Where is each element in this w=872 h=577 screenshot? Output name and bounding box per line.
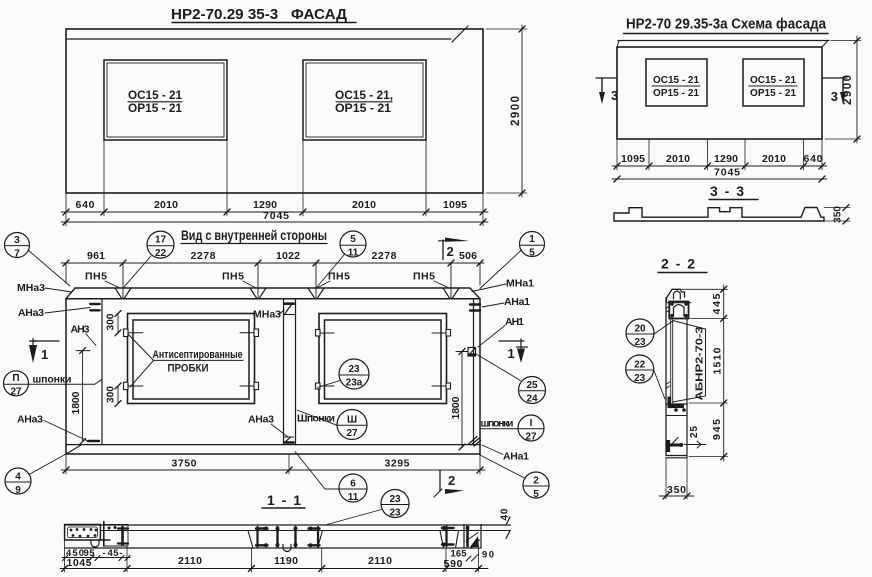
svg-text:3: 3: [14, 235, 20, 246]
svg-text:1: 1: [529, 234, 535, 245]
svg-text:НР2-70 29.35-3а Схема фасада: НР2-70 29.35-3а Схема фасада: [626, 17, 827, 33]
svg-text:350: 350: [667, 484, 686, 496]
svg-text:22: 22: [155, 248, 167, 259]
svg-text:ОС15 - 21,: ОС15 - 21,: [335, 88, 393, 102]
svg-text:17: 17: [155, 235, 167, 246]
svg-text:ОР15 - 21: ОР15 - 21: [653, 88, 699, 99]
svg-text:1022: 1022: [276, 250, 300, 262]
svg-text:27: 27: [10, 387, 22, 398]
svg-text:АБНР2-70-3: АБНР2-70-3: [694, 326, 706, 400]
svg-text:ОС15 - 21: ОС15 - 21: [128, 88, 182, 102]
svg-text:11: 11: [348, 248, 359, 259]
svg-text:3295: 3295: [385, 458, 410, 470]
svg-text:2110: 2110: [178, 555, 202, 567]
svg-text:27: 27: [346, 428, 358, 439]
svg-text:23: 23: [389, 508, 401, 519]
svg-text:22: 22: [634, 360, 646, 371]
svg-text:20: 20: [634, 324, 646, 335]
svg-text:ОР15 - 21: ОР15 - 21: [128, 101, 182, 115]
svg-text:350: 350: [833, 206, 844, 223]
svg-text:2278: 2278: [372, 250, 397, 262]
svg-text:7: 7: [14, 249, 20, 260]
svg-text:7045: 7045: [714, 167, 740, 179]
svg-text:3: 3: [611, 88, 618, 103]
svg-text:2010: 2010: [154, 199, 178, 211]
svg-text:23: 23: [634, 337, 646, 348]
svg-text:3750: 3750: [172, 458, 197, 470]
svg-text:1800: 1800: [450, 396, 462, 419]
svg-text:1: 1: [508, 346, 515, 361]
svg-text:2010: 2010: [666, 153, 690, 165]
svg-text:Вид с внутренней стороны: Вид с внутренней стороны: [181, 228, 327, 243]
svg-text:АН1: АН1: [505, 316, 524, 328]
svg-text:2900: 2900: [842, 75, 854, 105]
svg-text:ПРОБКИ: ПРОБКИ: [168, 363, 209, 375]
svg-text:300: 300: [106, 386, 117, 403]
svg-text:1800: 1800: [70, 391, 82, 414]
svg-text:АНа1: АНа1: [504, 296, 530, 308]
svg-text:5: 5: [350, 234, 356, 245]
svg-text:1: 1: [41, 347, 48, 362]
svg-text:2 - 2: 2 - 2: [661, 256, 695, 272]
svg-text:5: 5: [529, 248, 535, 259]
svg-text:ОР15 - 21: ОР15 - 21: [750, 88, 796, 99]
svg-text:Антисептированные: Антисептированные: [153, 349, 243, 361]
svg-text:Ш: Ш: [347, 415, 357, 426]
svg-text:24: 24: [526, 394, 538, 405]
svg-text:2010: 2010: [352, 199, 376, 211]
svg-text:25: 25: [526, 380, 538, 391]
svg-text:1095: 1095: [443, 199, 467, 211]
svg-text:27: 27: [525, 432, 537, 443]
svg-text:2: 2: [533, 476, 539, 487]
svg-text:шпонки: шпонки: [33, 374, 72, 386]
svg-text:I: I: [530, 418, 533, 429]
svg-text:23а: 23а: [346, 378, 363, 389]
svg-text:АН3: АН3: [71, 324, 90, 336]
svg-text:-: -: [119, 548, 122, 559]
svg-text:9: 9: [15, 485, 21, 496]
svg-text:ОР15 - 21: ОР15 - 21: [335, 101, 391, 115]
svg-text:445: 445: [711, 293, 723, 314]
svg-text:40: 40: [500, 508, 511, 520]
svg-text:961: 961: [87, 250, 105, 262]
svg-text:1045: 1045: [67, 557, 92, 569]
svg-text:АНа3: АНа3: [248, 414, 274, 426]
svg-text:945: 945: [711, 419, 723, 440]
svg-text:НР2-70.29 35-3 ФАСАД: НР2-70.29 35-3 ФАСАД: [171, 7, 348, 23]
svg-text:1290: 1290: [714, 153, 738, 165]
svg-text:шпонки: шпонки: [481, 418, 514, 430]
svg-text:ПН5: ПН5: [413, 271, 435, 283]
svg-text:2278: 2278: [191, 250, 216, 262]
svg-text:640: 640: [804, 153, 823, 165]
svg-text:11: 11: [348, 492, 359, 503]
svg-text:-: -: [102, 548, 105, 559]
svg-text:ОС15 - 21: ОС15 - 21: [653, 75, 699, 86]
svg-text:90: 90: [482, 550, 494, 561]
svg-text:МНа3: МНа3: [253, 309, 281, 321]
svg-text:506: 506: [459, 250, 477, 262]
svg-text:ПН5: ПН5: [222, 271, 244, 283]
svg-text:ОС15 - 21: ОС15 - 21: [750, 75, 796, 86]
svg-text:АНа3: АНа3: [18, 307, 44, 319]
svg-text:1095: 1095: [621, 153, 645, 165]
svg-text:АНа3: АНа3: [17, 414, 43, 426]
svg-text:ПН5: ПН5: [85, 271, 107, 283]
svg-text:П: П: [12, 373, 19, 384]
svg-text:4: 4: [15, 472, 21, 483]
svg-text:2900: 2900: [510, 96, 522, 126]
svg-text:25: 25: [689, 426, 700, 438]
svg-text:6: 6: [350, 479, 356, 490]
svg-text:640: 640: [76, 199, 95, 211]
svg-text:ПН5: ПН5: [328, 271, 350, 283]
svg-text:23: 23: [389, 494, 401, 505]
svg-text:2: 2: [448, 473, 455, 488]
svg-text:7045: 7045: [263, 210, 289, 222]
svg-text:1 - 1: 1 - 1: [267, 492, 301, 508]
svg-text:2: 2: [447, 244, 454, 259]
svg-text:1510: 1510: [712, 347, 724, 374]
svg-text:590: 590: [444, 558, 463, 570]
svg-text:165: 165: [451, 549, 468, 560]
svg-text:МНа1: МНа1: [506, 278, 534, 290]
svg-text:5: 5: [533, 489, 539, 500]
svg-text:3: 3: [831, 89, 838, 104]
svg-text:2110: 2110: [368, 555, 392, 567]
svg-text:1190: 1190: [274, 555, 298, 567]
svg-text:2010: 2010: [762, 153, 786, 165]
svg-text:23: 23: [634, 373, 646, 384]
svg-text:3 - 3: 3 - 3: [710, 183, 744, 199]
svg-text:45: 45: [108, 548, 120, 559]
svg-text:МНа3: МНа3: [17, 282, 45, 294]
svg-text:АНа1: АНа1: [503, 451, 529, 463]
svg-text:-: -: [476, 550, 479, 561]
svg-text:23: 23: [348, 364, 360, 375]
svg-text:300: 300: [106, 313, 117, 330]
